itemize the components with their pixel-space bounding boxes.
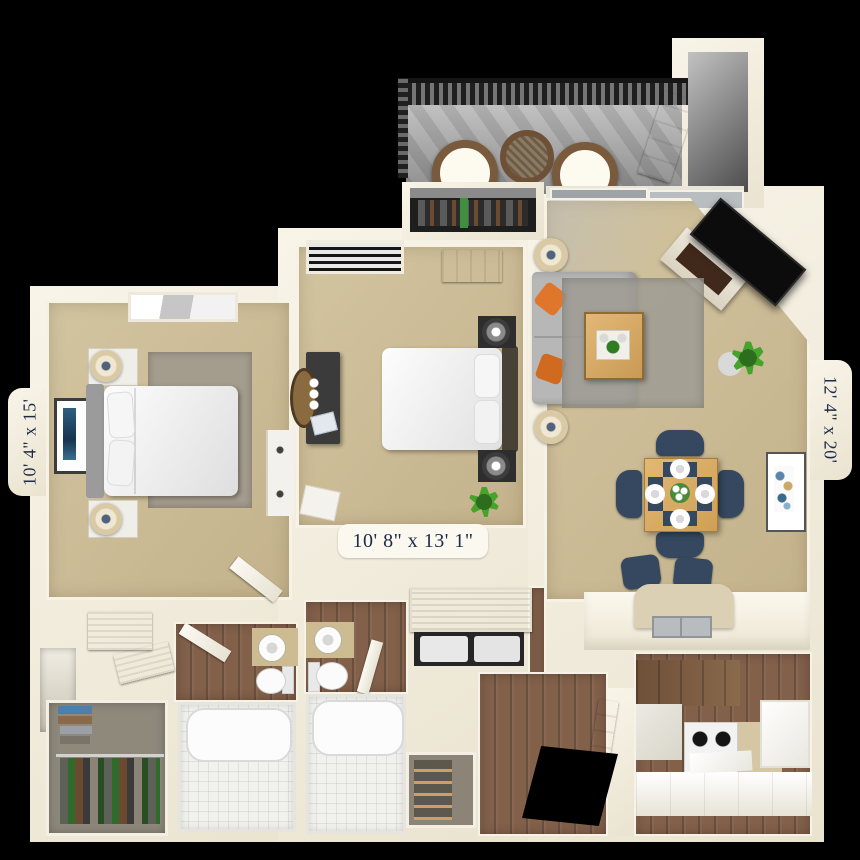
hanging-clothes-green-icon — [460, 198, 468, 228]
table-lamp-icon — [482, 452, 510, 480]
bathtub-basin — [312, 700, 404, 756]
dining-chair — [616, 470, 642, 518]
folded-clothes-stack — [58, 716, 92, 724]
plate — [670, 509, 690, 529]
pillow — [106, 439, 135, 487]
plate — [645, 484, 665, 504]
dresser — [266, 430, 294, 516]
kitchen-sink — [652, 616, 712, 638]
bathroom-sink — [314, 626, 342, 654]
washer-icon — [420, 636, 468, 662]
folded-clothes-stack — [58, 706, 92, 714]
storage-shelves — [414, 760, 452, 820]
floorplan-canvas: 10' 4" x 15' 12' 4" x 20' 10' 8" x 13' 1… — [0, 0, 860, 860]
pillow — [474, 354, 500, 398]
dryer-icon — [474, 636, 520, 662]
side-table-lamp-icon — [534, 238, 568, 272]
coffee-table-tray — [596, 330, 630, 360]
desk-cups — [309, 378, 319, 410]
closet-bifold-door — [88, 612, 152, 650]
bed-headboard — [502, 346, 518, 452]
topright-closet-recess — [688, 52, 748, 192]
plate — [670, 459, 690, 479]
bathtub-basin — [186, 708, 292, 762]
dining-chair — [718, 470, 744, 518]
pillow — [474, 400, 500, 444]
window-blinds — [306, 240, 404, 274]
table-lamp-icon — [482, 318, 510, 346]
dimension-label-left-bedroom: 10' 4" x 15' — [8, 388, 52, 496]
table-lamp-icon — [90, 503, 122, 535]
bathroom-sink — [258, 634, 286, 662]
dimension-label-middle-bedroom: 10' 8" x 13' 1" — [338, 524, 488, 558]
plate — [695, 484, 715, 504]
window — [128, 292, 238, 322]
hanging-clothes-icon — [418, 200, 528, 226]
closet-rod — [56, 754, 164, 757]
laundry-bifold-doors — [410, 588, 532, 632]
kitchen-counter-left — [636, 704, 682, 760]
dining-chair — [656, 532, 704, 558]
table-lamp-icon — [90, 350, 122, 382]
folded-clothes-stack — [60, 736, 90, 744]
hanging-clothes-icon — [60, 758, 160, 824]
wall-art-blue-paint — [63, 408, 76, 460]
balcony-railing — [398, 78, 704, 105]
dimension-label-living-room: 12' 4" x 20' — [808, 360, 852, 480]
kitchen-upper-cabinets — [636, 660, 740, 706]
kitchen-base-cabinets — [636, 772, 812, 816]
bedroom-door — [442, 250, 502, 282]
bed-headboard — [86, 384, 104, 498]
refrigerator — [760, 700, 810, 768]
patio-table-icon — [500, 130, 554, 184]
folded-clothes-stack — [60, 726, 92, 734]
side-table-lamp-icon — [534, 410, 568, 444]
bed-fold-line — [134, 388, 136, 494]
pillow — [106, 391, 135, 439]
dining-chair — [656, 430, 704, 456]
wall-art-abstract-paint — [774, 466, 794, 512]
centerpiece-flowers — [670, 483, 690, 503]
kitchen-island-box — [690, 750, 753, 773]
balcony-railing-left — [398, 78, 408, 178]
toilet-icon — [256, 668, 286, 694]
toilet-icon — [316, 662, 348, 690]
